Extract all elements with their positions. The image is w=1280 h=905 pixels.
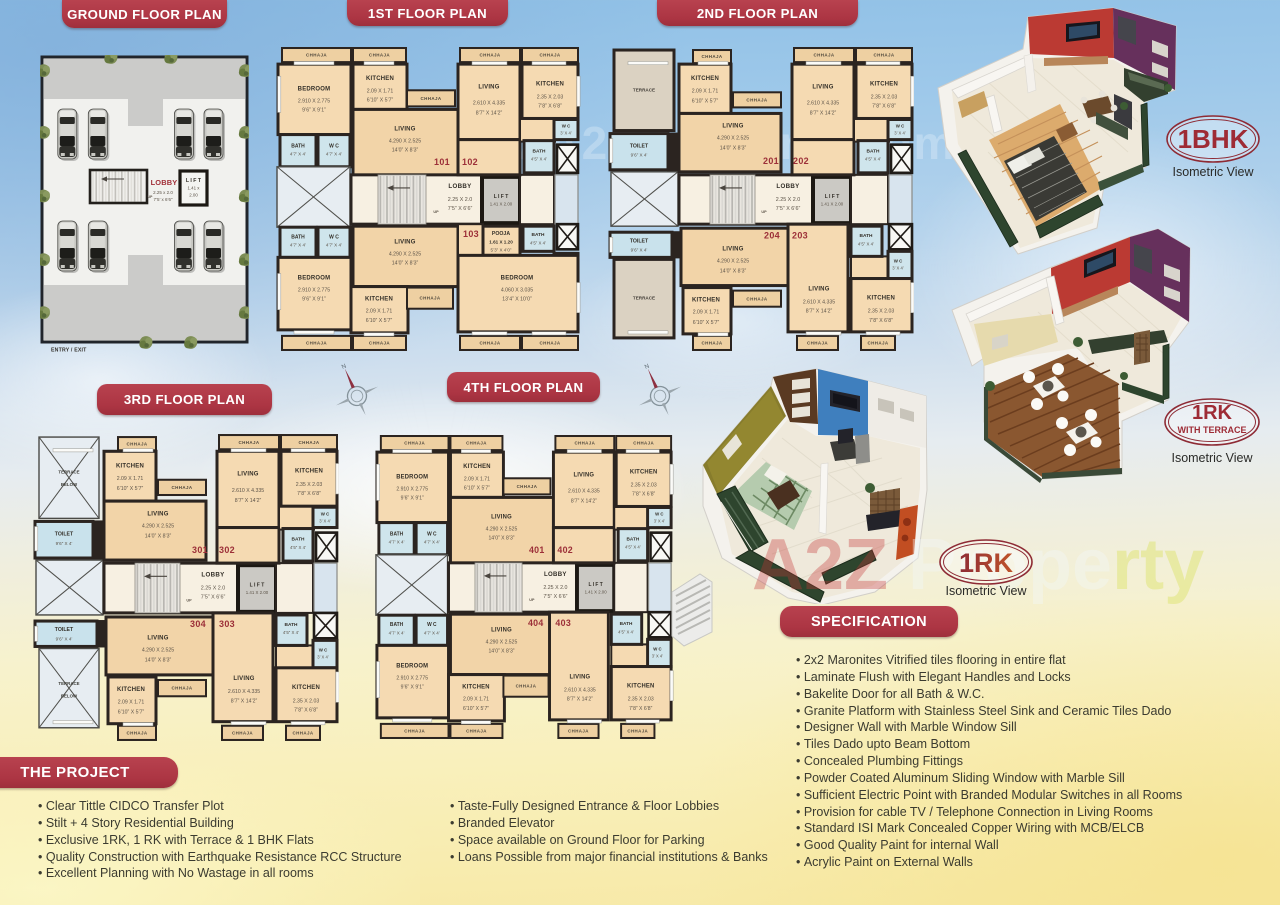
svg-text:8’7” X 14’2”: 8’7” X 14’2” [476, 110, 503, 116]
svg-text:W C: W C [321, 511, 330, 516]
svg-text:14’0” X 8’3”: 14’0” X 8’3” [145, 534, 172, 540]
svg-text:7’5” X 6’6”: 7’5” X 6’6” [201, 595, 226, 601]
svg-text:4’7’ X 4’: 4’7’ X 4’ [389, 630, 405, 635]
svg-text:CHHAJA: CHHAJA [292, 730, 313, 735]
svg-text:4.290 X 2.525: 4.290 X 2.525 [486, 527, 518, 533]
svg-text:101: 101 [434, 157, 450, 167]
svg-text:14’0” X 8’3”: 14’0” X 8’3” [145, 658, 172, 664]
svg-text:W C: W C [329, 234, 339, 240]
svg-text:BEDROOM: BEDROOM [501, 276, 534, 282]
svg-text:TERRACE: TERRACE [58, 470, 79, 475]
svg-text:CHHAJA: CHHAJA [404, 728, 425, 733]
svg-text:LIVING: LIVING [722, 246, 743, 252]
svg-text:CHHAJA: CHHAJA [807, 341, 828, 346]
svg-text:1.41 X 2.00: 1.41 X 2.00 [821, 202, 844, 207]
svg-text:3’ X 4’: 3’ X 4’ [892, 265, 904, 270]
svg-text:2.35 X 2.03: 2.35 X 2.03 [871, 94, 898, 100]
svg-text:KITCHEN: KITCHEN [463, 464, 490, 470]
svg-text:L I F T: L I F T [250, 582, 266, 588]
svg-text:7’8” X 6’8”: 7’8” X 6’8” [869, 318, 893, 324]
svg-text:9’6” X 9’1”: 9’6” X 9’1” [401, 685, 424, 691]
svg-text:2.35 X 2.03: 2.35 X 2.03 [628, 697, 654, 703]
svg-text:CHHAJA: CHHAJA [479, 53, 500, 58]
svg-text:8’7” X 14’2”: 8’7” X 14’2” [235, 498, 262, 504]
svg-text:2.25 X 2.0: 2.25 X 2.0 [201, 586, 226, 592]
svg-text:BATH: BATH [390, 532, 404, 538]
svg-text:UP: UP [186, 599, 192, 603]
svg-text:4’7’ X 4’: 4’7’ X 4’ [290, 152, 306, 157]
svg-text:CHHAJA: CHHAJA [746, 97, 767, 102]
svg-text:2.35 X 2.03: 2.35 X 2.03 [631, 482, 657, 488]
svg-text:BATH: BATH [390, 622, 404, 628]
svg-text:404: 404 [528, 618, 544, 628]
svg-text:2.35 X 2.03: 2.35 X 2.03 [293, 698, 320, 704]
svg-text:KITCHEN: KITCHEN [627, 684, 654, 690]
svg-text:4.290 X 2.525: 4.290 X 2.525 [142, 523, 174, 529]
svg-text:9’6” X 9’1”: 9’6” X 9’1” [401, 495, 424, 501]
svg-text:W C: W C [427, 532, 437, 538]
svg-text:CHHAJA: CHHAJA [466, 441, 487, 446]
svg-text:LOBBY: LOBBY [448, 183, 472, 190]
svg-text:2.910 X 2.775: 2.910 X 2.775 [396, 676, 428, 682]
svg-text:14’0” X 8’3”: 14’0” X 8’3” [392, 260, 419, 266]
svg-text:7’8” X 6’8”: 7’8” X 6’8” [872, 103, 896, 109]
svg-text:7’5’ x 6’6”: 7’5’ x 6’6” [153, 197, 173, 202]
svg-text:202: 202 [793, 156, 809, 166]
svg-text:TERRACE: TERRACE [58, 681, 79, 686]
svg-text:7’8” X 6’8”: 7’8” X 6’8” [629, 706, 652, 712]
svg-text:9’6” X 9’1”: 9’6” X 9’1” [302, 107, 326, 113]
svg-text:LIVING: LIVING [394, 239, 415, 245]
svg-text:2.610 X 4.335: 2.610 X 4.335 [807, 100, 839, 106]
svg-text:2.09 X 1.71: 2.09 X 1.71 [464, 476, 490, 482]
svg-text:CHHAJA: CHHAJA [306, 341, 327, 346]
svg-text:401: 401 [529, 545, 545, 555]
svg-text:4’5” X 4’: 4’5” X 4’ [865, 157, 881, 162]
svg-text:2.610 X 4.335: 2.610 X 4.335 [568, 488, 600, 494]
svg-text:303: 303 [219, 619, 235, 629]
svg-text:L I F T: L I F T [186, 178, 202, 184]
svg-text:LIVING: LIVING [570, 675, 591, 681]
svg-text:2.610 X 4.335: 2.610 X 4.335 [564, 688, 596, 694]
svg-text:KITCHEN: KITCHEN [365, 297, 393, 303]
svg-text:L I F T: L I F T [825, 194, 840, 200]
svg-text:BEDROOM: BEDROOM [396, 474, 428, 480]
svg-text:CHHAJA: CHHAJA [627, 728, 648, 733]
svg-text:2.910 X 2.775: 2.910 X 2.775 [298, 98, 330, 104]
svg-text:KITCHEN: KITCHEN [116, 464, 144, 470]
svg-text:4’7’ X 4’: 4’7’ X 4’ [389, 540, 405, 545]
svg-text:2.35 X 2.03: 2.35 X 2.03 [296, 482, 323, 488]
svg-text:302: 302 [219, 545, 235, 555]
svg-text:9’6” X 4’: 9’6” X 4’ [631, 247, 648, 252]
svg-text:KITCHEN: KITCHEN [295, 469, 323, 475]
svg-text:2.35 X 2.03: 2.35 X 2.03 [537, 94, 564, 100]
svg-text:4’5” X 4’: 4’5” X 4’ [531, 157, 547, 162]
svg-text:3’ X 4’: 3’ X 4’ [654, 519, 665, 524]
svg-text:POOJA: POOJA [492, 231, 510, 237]
svg-text:CHHAJA: CHHAJA [171, 686, 192, 691]
svg-text:2.610 X 4.335: 2.610 X 4.335 [473, 100, 505, 106]
svg-text:1BHK: 1BHK [1178, 124, 1249, 154]
svg-text:BEDROOM: BEDROOM [396, 663, 428, 669]
svg-text:BATH: BATH [627, 537, 640, 543]
svg-text:UP: UP [148, 195, 153, 199]
svg-text:8’7” X 14’2”: 8’7” X 14’2” [571, 498, 597, 504]
svg-text:LOBBY: LOBBY [151, 178, 178, 187]
svg-text:TOILET: TOILET [55, 532, 74, 538]
svg-text:8’7” X 14’2”: 8’7” X 14’2” [806, 309, 833, 315]
svg-text:CHHAJA: CHHAJA [517, 484, 538, 489]
svg-text:LOBBY: LOBBY [776, 183, 800, 190]
svg-text:2.09 X 1.71: 2.09 X 1.71 [117, 476, 144, 482]
svg-text:CHHAJA: CHHAJA [306, 53, 327, 58]
svg-text:2.35 X 2.03: 2.35 X 2.03 [868, 309, 895, 315]
svg-text:3’ X 4’: 3’ X 4’ [319, 518, 331, 523]
svg-text:9’6” X 4’: 9’6” X 4’ [631, 153, 648, 158]
svg-text:4’5” X 4’: 4’5” X 4’ [290, 545, 306, 550]
svg-text:CHHAJA: CHHAJA [539, 341, 560, 346]
svg-text:CHHAJA: CHHAJA [574, 441, 595, 446]
svg-text:LIVING: LIVING [491, 515, 512, 521]
svg-text:6’10” X 5’7”: 6’10” X 5’7” [692, 98, 719, 104]
svg-text:4.290 X 2.525: 4.290 X 2.525 [389, 251, 421, 257]
svg-text:KITCHEN: KITCHEN [630, 469, 657, 475]
svg-text:7’5” X 6’6”: 7’5” X 6’6” [543, 594, 567, 600]
svg-text:6’10” X 5’7”: 6’10” X 5’7” [464, 485, 490, 491]
svg-text:6’10” X 5’7”: 6’10” X 5’7” [118, 710, 145, 716]
svg-text:7’8” X 6’8”: 7’8” X 6’8” [297, 491, 321, 497]
svg-text:BATH: BATH [291, 144, 305, 150]
svg-text:W C: W C [562, 124, 571, 129]
svg-text:KITCHEN: KITCHEN [117, 687, 145, 693]
svg-text:KITCHEN: KITCHEN [867, 296, 895, 302]
svg-text:N: N [341, 364, 347, 371]
svg-text:4’5” X 4’: 4’5” X 4’ [625, 545, 641, 550]
svg-text:8’7” X 14’2”: 8’7” X 14’2” [810, 110, 837, 116]
svg-text:4’7’ X 4’: 4’7’ X 4’ [326, 152, 342, 157]
svg-text:8’7” X 14’2”: 8’7” X 14’2” [231, 698, 258, 704]
svg-text:402: 402 [557, 545, 573, 555]
svg-text:ENTRY / EXIT: ENTRY / EXIT [51, 348, 87, 354]
svg-text:7’8” X 6’8”: 7’8” X 6’8” [538, 103, 562, 109]
svg-text:7’5” X 6’6”: 7’5” X 6’6” [776, 206, 801, 212]
svg-text:2.910 X 2.775: 2.910 X 2.775 [396, 486, 428, 492]
svg-text:W C: W C [655, 511, 664, 516]
svg-text:TERRACE: TERRACE [633, 87, 655, 92]
svg-text:CHHAJA: CHHAJA [813, 53, 834, 58]
svg-text:6’10” X 5’7”: 6’10” X 5’7” [367, 97, 394, 103]
svg-text:W C: W C [427, 622, 437, 628]
svg-text:4’5” X 4’: 4’5” X 4’ [858, 241, 874, 246]
svg-text:W C: W C [894, 258, 903, 263]
svg-text:BATH: BATH [620, 621, 633, 627]
svg-text:KITCHEN: KITCHEN [462, 685, 489, 691]
svg-text:304: 304 [190, 619, 206, 629]
svg-text:4’7’ X 4’: 4’7’ X 4’ [290, 242, 306, 247]
svg-text:LIVING: LIVING [147, 511, 168, 517]
svg-text:2.09 X 1.71: 2.09 X 1.71 [118, 699, 145, 705]
svg-text:WITH TERRACE: WITH TERRACE [1178, 425, 1247, 435]
svg-text:8’7” X 14’2”: 8’7” X 14’2” [567, 697, 593, 703]
svg-text:LIVING: LIVING [808, 287, 829, 293]
svg-text:CHHAJA: CHHAJA [701, 54, 722, 59]
svg-text:L I F T: L I F T [588, 582, 602, 588]
svg-text:L I F T: L I F T [494, 194, 509, 200]
svg-text:CHHAJA: CHHAJA [516, 684, 537, 689]
svg-text:4’7’ X 4’: 4’7’ X 4’ [424, 540, 440, 545]
svg-text:CHHAJA: CHHAJA [171, 485, 192, 490]
svg-text:1.41 X 2.00: 1.41 X 2.00 [585, 589, 608, 594]
svg-text:7’8” X 6’8”: 7’8” X 6’8” [632, 491, 655, 497]
svg-text:2.00: 2.00 [189, 193, 198, 198]
svg-text:LOBBY: LOBBY [544, 571, 567, 578]
svg-text:TOILET: TOILET [630, 144, 649, 150]
svg-text:5’3” X 4’0”: 5’3” X 4’0” [491, 247, 512, 252]
svg-text:CHHAJA: CHHAJA [539, 53, 560, 58]
svg-text:2.25 x 2.0: 2.25 x 2.0 [153, 190, 173, 195]
svg-text:1.41 X 2.00: 1.41 X 2.00 [490, 202, 513, 207]
svg-text:BATH: BATH [867, 149, 880, 155]
svg-text:BATH: BATH [533, 149, 546, 155]
svg-text:CHHAJA: CHHAJA [238, 440, 259, 445]
svg-text:14’0” X 8’3”: 14’0” X 8’3” [720, 146, 747, 152]
svg-text:4’7’ X 4’: 4’7’ X 4’ [326, 242, 342, 247]
svg-text:W C: W C [329, 144, 339, 150]
svg-text:CHHAJA: CHHAJA [369, 53, 390, 58]
svg-text:301: 301 [192, 545, 208, 555]
svg-text:9’6” X 9’1”: 9’6” X 9’1” [302, 297, 326, 303]
svg-text:2.09 X 1.71: 2.09 X 1.71 [693, 310, 720, 316]
svg-text:LIVING: LIVING [237, 472, 258, 478]
svg-text:2.610 X 4.335: 2.610 X 4.335 [803, 300, 835, 306]
svg-text:14’0” X 8’3”: 14’0” X 8’3” [488, 536, 514, 542]
svg-text:1RK: 1RK [959, 548, 1014, 578]
svg-text:TOILET: TOILET [630, 238, 649, 244]
svg-text:3’ X 4’: 3’ X 4’ [894, 131, 906, 136]
svg-text:2.09 X 1.71: 2.09 X 1.71 [367, 88, 394, 94]
svg-text:13’4” X 10’0”: 13’4” X 10’0” [502, 297, 532, 303]
svg-text:W C: W C [653, 646, 662, 651]
svg-text:1.41 X 2.00: 1.41 X 2.00 [246, 590, 269, 595]
svg-text:CHHAJA: CHHAJA [369, 341, 390, 346]
svg-text:BATH: BATH [292, 537, 305, 543]
svg-text:4.290 X 2.525: 4.290 X 2.525 [717, 136, 749, 142]
svg-text:7’5” X 6’6”: 7’5” X 6’6” [448, 206, 473, 212]
svg-text:2.09 X 1.71: 2.09 X 1.71 [692, 88, 719, 94]
svg-text:CHHAJA: CHHAJA [568, 728, 589, 733]
svg-text:UP: UP [529, 598, 535, 602]
svg-text:1RK: 1RK [1192, 402, 1233, 424]
svg-text:CHHAJA: CHHAJA [633, 441, 654, 446]
svg-text:CHHAJA: CHHAJA [126, 441, 147, 446]
svg-text:CHHAJA: CHHAJA [420, 96, 441, 101]
svg-text:CHHAJA: CHHAJA [479, 341, 500, 346]
svg-text:LIVING: LIVING [147, 635, 168, 641]
svg-text:LIVING: LIVING [233, 676, 254, 682]
svg-text:4’5” X 4’: 4’5” X 4’ [618, 629, 634, 634]
svg-text:4’5” X 4’: 4’5” X 4’ [530, 240, 546, 245]
svg-text:BELOW: BELOW [61, 482, 78, 487]
svg-text:6’10” X 5’7”: 6’10” X 5’7” [117, 486, 144, 492]
svg-text:LOBBY: LOBBY [201, 571, 225, 578]
svg-text:6’10” X 5’7”: 6’10” X 5’7” [693, 320, 720, 326]
svg-text:CHHAJA: CHHAJA [404, 441, 425, 446]
svg-text:14’0” X 8’3”: 14’0” X 8’3” [392, 148, 419, 154]
svg-text:2.610 X 4.335: 2.610 X 4.335 [232, 488, 264, 494]
svg-text:LIVING: LIVING [478, 84, 499, 90]
svg-text:CHHAJA: CHHAJA [126, 730, 147, 735]
svg-text:4’7’ X 4’: 4’7’ X 4’ [424, 630, 440, 635]
svg-text:3’ X 4’: 3’ X 4’ [317, 655, 329, 660]
svg-text:2.25 X 2.0: 2.25 X 2.0 [543, 585, 567, 591]
svg-text:7’8” X 6’8”: 7’8” X 6’8” [294, 707, 318, 713]
svg-text:9’6” X 4’: 9’6” X 4’ [56, 636, 73, 641]
svg-text:CHHAJA: CHHAJA [466, 728, 487, 733]
svg-text:6’10” X 5’7”: 6’10” X 5’7” [366, 318, 393, 324]
svg-text:2.09 X 1.71: 2.09 X 1.71 [366, 309, 393, 315]
svg-text:103: 103 [463, 229, 479, 239]
svg-text:KITCHEN: KITCHEN [870, 81, 898, 87]
svg-text:4.290 X 2.525: 4.290 X 2.525 [142, 648, 174, 654]
svg-text:BEDROOM: BEDROOM [298, 86, 331, 92]
svg-text:CHHAJA: CHHAJA [701, 341, 722, 346]
svg-text:4’5” X 4’: 4’5” X 4’ [283, 630, 299, 635]
svg-text:4.290 X 2.525: 4.290 X 2.525 [486, 639, 518, 645]
svg-text:14’0” X 8’3”: 14’0” X 8’3” [720, 268, 747, 274]
svg-text:CHHAJA: CHHAJA [746, 296, 767, 301]
svg-text:2.09 X 1.71: 2.09 X 1.71 [463, 697, 489, 703]
svg-text:TERRACE: TERRACE [633, 296, 655, 301]
svg-text:N: N [644, 364, 650, 371]
svg-text:9’6” X 4’: 9’6” X 4’ [56, 541, 73, 546]
svg-text:CHHAJA: CHHAJA [419, 296, 440, 301]
svg-text:CHHAJA: CHHAJA [873, 53, 894, 58]
svg-text:BATH: BATH [285, 622, 298, 628]
svg-text:BATH: BATH [860, 233, 873, 239]
svg-text:LIVING: LIVING [573, 472, 594, 478]
svg-text:102: 102 [462, 157, 478, 167]
svg-text:BATH: BATH [532, 232, 545, 238]
svg-text:403: 403 [555, 618, 571, 628]
svg-text:KITCHEN: KITCHEN [691, 76, 719, 82]
svg-text:CHHAJA: CHHAJA [298, 440, 319, 445]
svg-text:KITCHEN: KITCHEN [692, 298, 720, 304]
svg-text:1.41 x: 1.41 x [188, 186, 201, 191]
svg-text:LIVING: LIVING [491, 627, 512, 633]
svg-text:KITCHEN: KITCHEN [292, 685, 320, 691]
svg-text:TOILET: TOILET [55, 627, 74, 633]
svg-text:4.060 X 3.035: 4.060 X 3.035 [501, 288, 533, 294]
svg-text:2.25 X 2.0: 2.25 X 2.0 [776, 197, 801, 203]
svg-text:BELOW: BELOW [61, 693, 78, 698]
svg-text:LIVING: LIVING [394, 127, 415, 133]
svg-text:UP: UP [761, 210, 767, 214]
svg-text:UP: UP [433, 210, 439, 214]
svg-text:2.25 X 2.0: 2.25 X 2.0 [448, 197, 473, 203]
svg-text:LIVING: LIVING [812, 84, 833, 90]
svg-text:3’ X 4’: 3’ X 4’ [652, 653, 663, 658]
svg-text:4.290 X 2.525: 4.290 X 2.525 [389, 139, 421, 145]
svg-text:204: 204 [764, 230, 780, 240]
svg-text:6’10” X 5’7”: 6’10” X 5’7” [463, 706, 489, 712]
svg-text:201: 201 [763, 156, 779, 166]
svg-text:CHHAJA: CHHAJA [867, 341, 888, 346]
svg-text:3’ X 4’: 3’ X 4’ [560, 131, 572, 136]
svg-text:203: 203 [792, 230, 808, 240]
svg-text:1.61 X 1.20: 1.61 X 1.20 [489, 239, 513, 244]
svg-text:LIVING: LIVING [722, 124, 743, 130]
svg-text:W C: W C [319, 648, 328, 653]
svg-text:2.910 X 2.775: 2.910 X 2.775 [298, 288, 330, 294]
svg-text:CHHAJA: CHHAJA [232, 730, 253, 735]
svg-text:4.290 X 2.525: 4.290 X 2.525 [717, 258, 749, 264]
svg-text:KITCHEN: KITCHEN [366, 76, 394, 82]
svg-text:2.610 X 4.335: 2.610 X 4.335 [228, 689, 260, 695]
svg-text:BEDROOM: BEDROOM [298, 276, 331, 282]
svg-text:KITCHEN: KITCHEN [536, 81, 564, 87]
svg-text:14’0” X 8’3”: 14’0” X 8’3” [488, 648, 514, 654]
svg-text:W C: W C [896, 124, 905, 129]
svg-text:BATH: BATH [291, 234, 305, 240]
